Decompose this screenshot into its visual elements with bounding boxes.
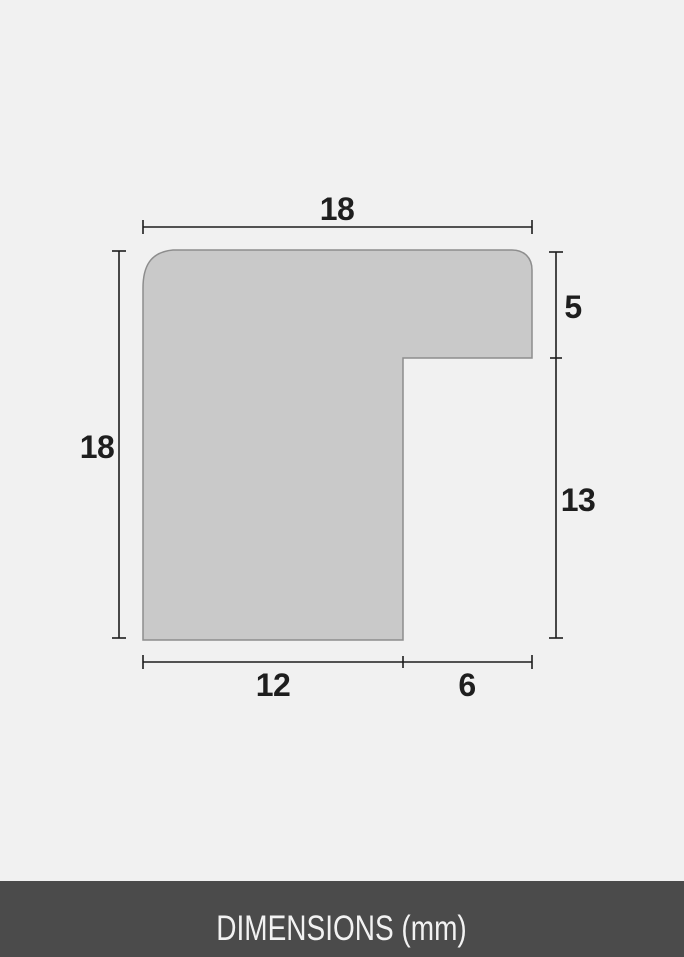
frame-profile-shape: [143, 250, 532, 640]
dim-bottom-left-label: 12: [256, 667, 291, 703]
dimension-left: 18: [80, 251, 126, 638]
page: 18 18 5 13 12 6 DIMENSIONS (m: [0, 0, 684, 957]
profile-diagram: 18 18 5 13 12 6: [0, 0, 684, 881]
dim-top-label: 18: [320, 191, 355, 227]
footer-title: DIMENSIONS (mm): [217, 909, 467, 949]
dimension-right: 5 13: [549, 252, 595, 638]
dim-right-top-label: 5: [564, 289, 581, 325]
dim-left-label: 18: [80, 429, 115, 465]
dim-bottom-right-label: 6: [458, 667, 475, 703]
dimension-bottom: 12 6: [143, 655, 532, 703]
footer-bar: DIMENSIONS (mm): [0, 881, 684, 957]
dim-right-bottom-label: 13: [561, 482, 596, 518]
dimension-top: 18: [143, 191, 532, 234]
